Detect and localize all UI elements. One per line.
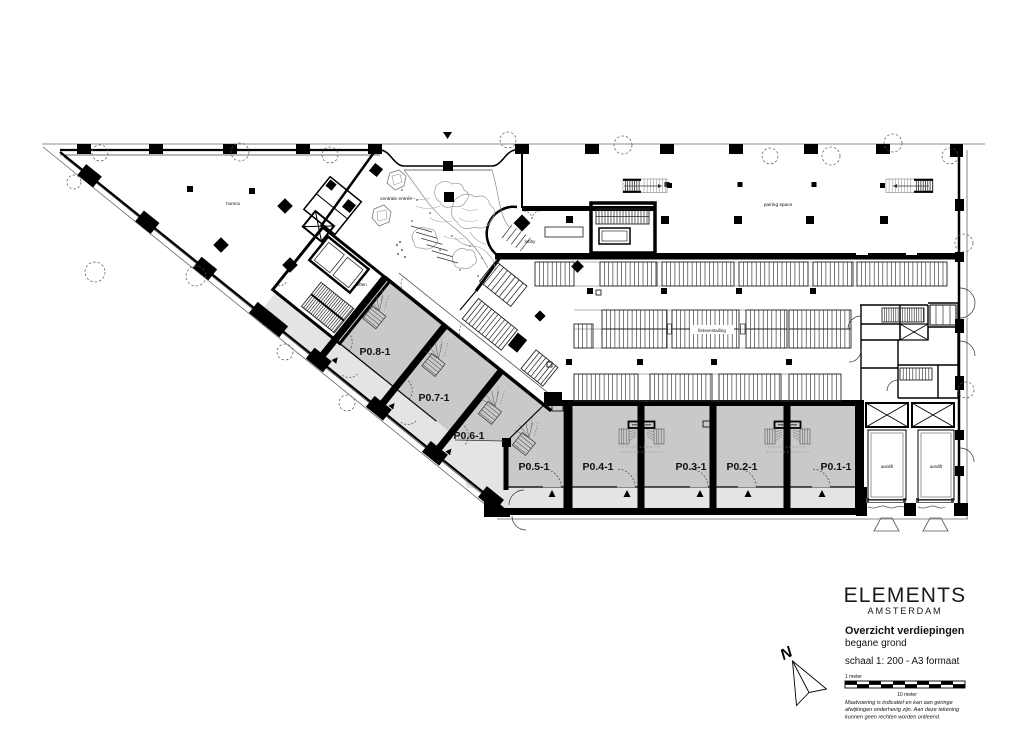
svg-text:begane grond: begane grond [845,638,907,649]
svg-text:P0.4-1: P0.4-1 [583,461,614,473]
svg-text:fietsenstalling: fietsenstalling [698,328,726,333]
svg-text:P0.3-1: P0.3-1 [676,461,707,473]
svg-text:horeca: horeca [226,201,240,206]
svg-text:P0.7-1: P0.7-1 [419,392,450,404]
svg-text:P0.8-1: P0.8-1 [360,346,391,358]
svg-text:AMSTERDAM: AMSTERDAM [868,606,943,616]
svg-text:pairing space: pairing space [764,202,793,208]
svg-text:schaal 1: 200 - A3 formaat: schaal 1: 200 - A3 formaat [845,656,960,667]
svg-text:P0.2-1: P0.2-1 [727,461,758,473]
svg-text:autolift: autolift [881,464,894,469]
svg-text:10 meter: 10 meter [897,692,917,698]
svg-text:Maatvoering is indicatief en k: Maatvoering is indicatief en kan aan ger… [845,700,953,706]
svg-text:P0.5-1: P0.5-1 [519,461,550,473]
svg-text:afwijkingen onderhevig zijn. A: afwijkingen onderhevig zijn. Aan deze te… [845,707,960,713]
svg-text:kunnen geen rechten worden ont: kunnen geen rechten worden ontleend. [845,714,940,720]
svg-text:P0.1-1: P0.1-1 [821,461,852,473]
svg-text:Overzicht verdiepingen: Overzicht verdiepingen [845,625,964,637]
svg-text:centrale entree: centrale entree [380,196,412,202]
svg-text:ELEMENTS: ELEMENTS [844,584,967,607]
svg-text:liften: liften [357,282,367,287]
svg-text:1 meter: 1 meter [845,674,862,680]
svg-text:autolift: autolift [930,464,943,469]
svg-text:P0.6-1: P0.6-1 [454,430,485,442]
